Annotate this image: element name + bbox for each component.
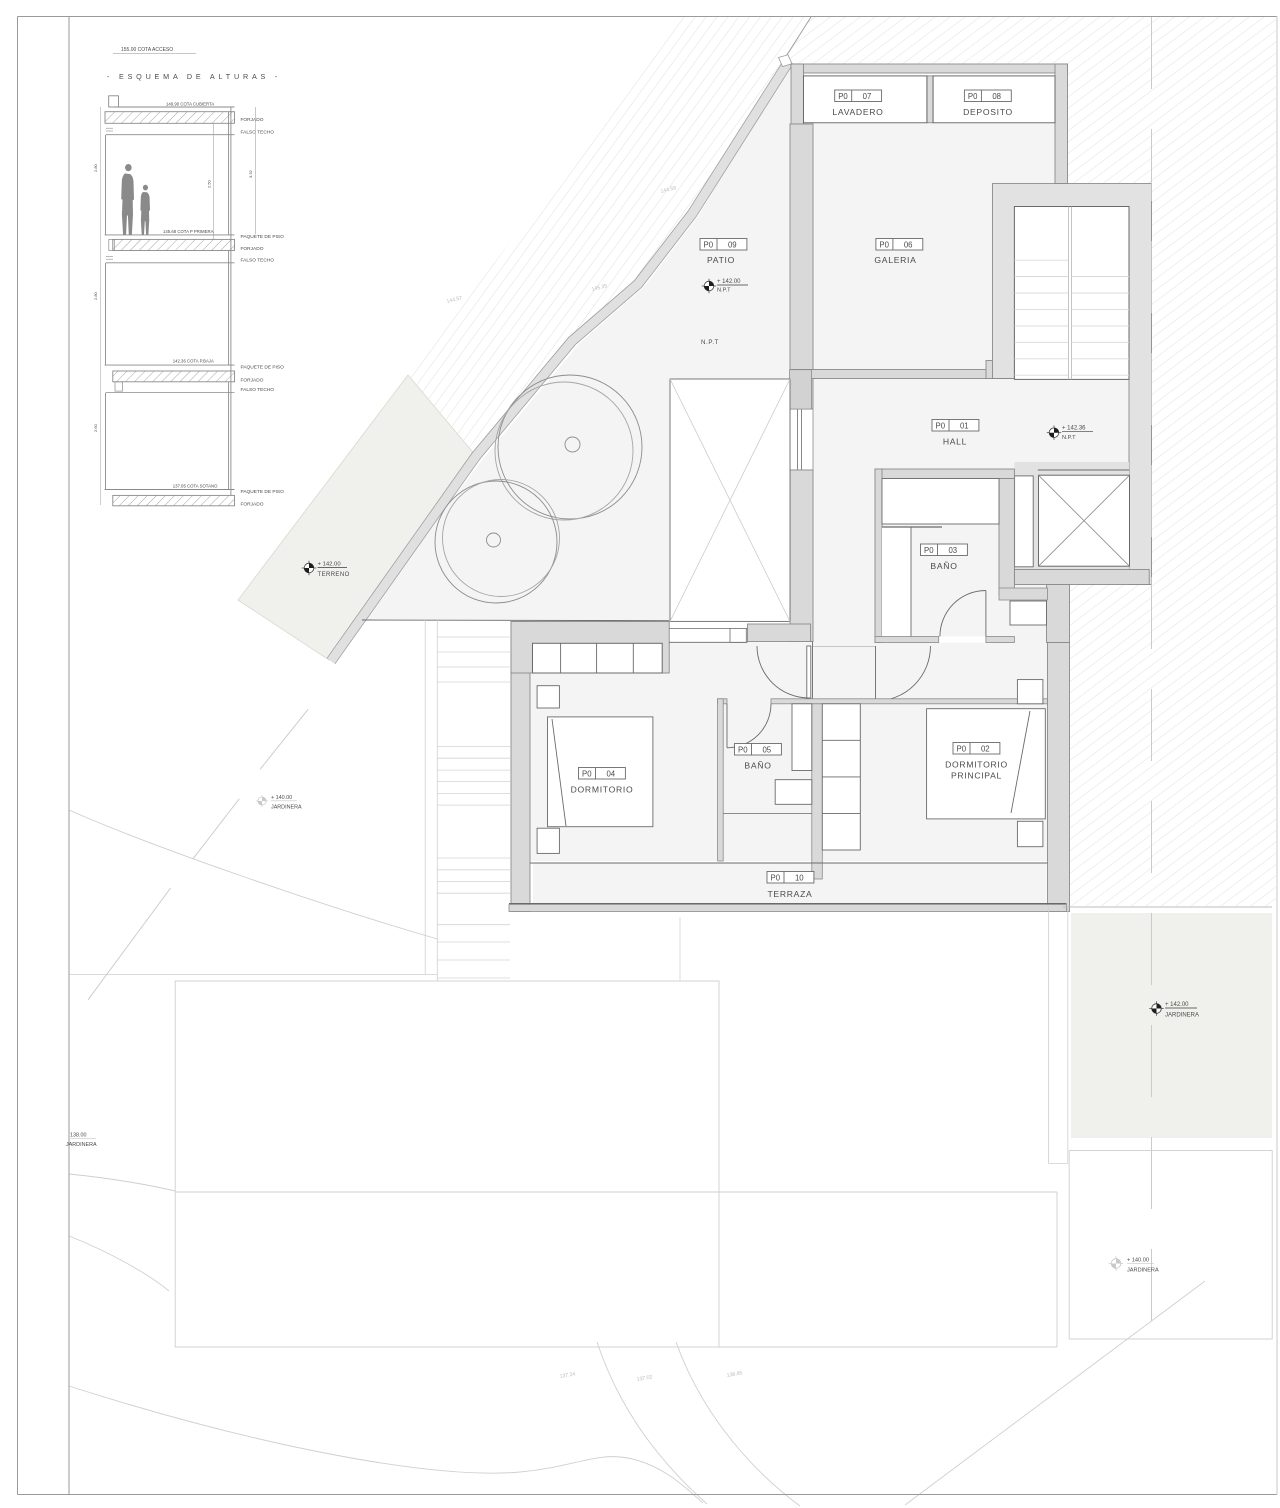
- svg-text:+ 140.00: + 140.00: [1127, 1258, 1149, 1264]
- svg-text:04: 04: [606, 770, 615, 779]
- svg-text:P0: P0: [704, 241, 714, 250]
- svg-text:P0: P0: [957, 745, 967, 754]
- svg-text:PRINCIPAL: PRINCIPAL: [951, 771, 1002, 781]
- svg-text:LAVADERO: LAVADERO: [832, 107, 883, 117]
- svg-text:N.P.T: N.P.T: [1062, 435, 1076, 441]
- svg-text:10: 10: [795, 874, 804, 883]
- svg-text:138.00: 138.00: [70, 1133, 87, 1139]
- svg-text:149.90 COTA CUBIERTA: 149.90 COTA CUBIERTA: [166, 101, 214, 106]
- svg-text:142.36 COTA P.BAJA: 142.36 COTA P.BAJA: [173, 359, 214, 364]
- svg-text:2.50: 2.50: [207, 179, 212, 188]
- svg-text:P0: P0: [936, 422, 946, 431]
- svg-text:08: 08: [992, 92, 1001, 101]
- svg-text:DORMITORIO: DORMITORIO: [571, 785, 634, 795]
- svg-text:P0: P0: [968, 92, 978, 101]
- svg-text:01: 01: [960, 422, 969, 431]
- svg-text:FORJADO: FORJADO: [241, 378, 264, 384]
- svg-text:- ESQUEMA DE ALTURAS -: - ESQUEMA DE ALTURAS -: [107, 72, 281, 81]
- svg-text:02: 02: [981, 745, 990, 754]
- svg-text:PAQUETE DE PISO: PAQUETE DE PISO: [241, 234, 285, 240]
- svg-text:JARDINERA: JARDINERA: [271, 805, 302, 811]
- svg-text:DEPOSITO: DEPOSITO: [963, 107, 1013, 117]
- svg-text:FORJADO: FORJADO: [241, 502, 264, 508]
- svg-text:+ 142.00: + 142.00: [717, 279, 741, 285]
- svg-text:+ 142.36: + 142.36: [1062, 426, 1086, 432]
- svg-text:PAQUETE DE PISO: PAQUETE DE PISO: [241, 364, 285, 370]
- svg-text:FALSO TECHO: FALSO TECHO: [241, 257, 275, 263]
- svg-text:06: 06: [904, 241, 913, 250]
- svg-text:P0: P0: [879, 241, 889, 250]
- svg-text:+ 142.00: + 142.00: [318, 562, 342, 568]
- svg-text:145.68 COTA P PRIMERA: 145.68 COTA P PRIMERA: [163, 229, 214, 234]
- svg-text:JARDINERA: JARDINERA: [1165, 1013, 1199, 1019]
- svg-text:DORMITORIO: DORMITORIO: [945, 760, 1008, 770]
- svg-text:FORJADO: FORJADO: [241, 117, 264, 123]
- svg-text:137.05 COTA SOTANO: 137.05 COTA SOTANO: [173, 484, 218, 489]
- svg-text:07: 07: [863, 92, 872, 101]
- svg-text:155.00 COTA ACCESO: 155.00 COTA ACCESO: [121, 47, 173, 53]
- svg-text:BAÑO: BAÑO: [930, 561, 957, 571]
- svg-text:+ 140.00: + 140.00: [271, 795, 292, 801]
- svg-text:09: 09: [728, 241, 737, 250]
- svg-text:PATIO: PATIO: [707, 255, 735, 265]
- svg-text:P0: P0: [582, 770, 592, 779]
- svg-text:3.32: 3.32: [248, 169, 253, 178]
- svg-text:2.60: 2.60: [93, 423, 98, 432]
- svg-text:FALSO TECHO: FALSO TECHO: [241, 129, 275, 135]
- svg-text:P0: P0: [924, 546, 934, 555]
- svg-text:JARDINERA: JARDINERA: [1127, 1268, 1159, 1274]
- svg-text:TERRAZA: TERRAZA: [767, 889, 812, 899]
- svg-text:PAQUETE DE PISO: PAQUETE DE PISO: [241, 489, 285, 495]
- svg-text:FALSO TECHO: FALSO TECHO: [241, 387, 275, 393]
- svg-text:HALL: HALL: [943, 437, 967, 447]
- svg-text:FORJADO: FORJADO: [241, 246, 264, 252]
- svg-text:JARDINERA: JARDINERA: [66, 1142, 97, 1148]
- svg-text:GALERIA: GALERIA: [874, 255, 916, 265]
- svg-text:N.P.T: N.P.T: [717, 288, 731, 294]
- svg-text:BAÑO: BAÑO: [744, 761, 771, 771]
- svg-text:03: 03: [948, 546, 957, 555]
- svg-text:2.80: 2.80: [93, 291, 98, 300]
- svg-text:05: 05: [762, 746, 771, 755]
- svg-text:P0: P0: [771, 874, 781, 883]
- svg-text:TERRENO: TERRENO: [318, 572, 350, 578]
- svg-text:+ 142.00: + 142.00: [1165, 1002, 1189, 1008]
- svg-text:N.P.T: N.P.T: [701, 339, 719, 346]
- svg-text:P0: P0: [838, 92, 848, 101]
- svg-text:2.80: 2.80: [93, 163, 98, 172]
- svg-text:P0: P0: [738, 746, 748, 755]
